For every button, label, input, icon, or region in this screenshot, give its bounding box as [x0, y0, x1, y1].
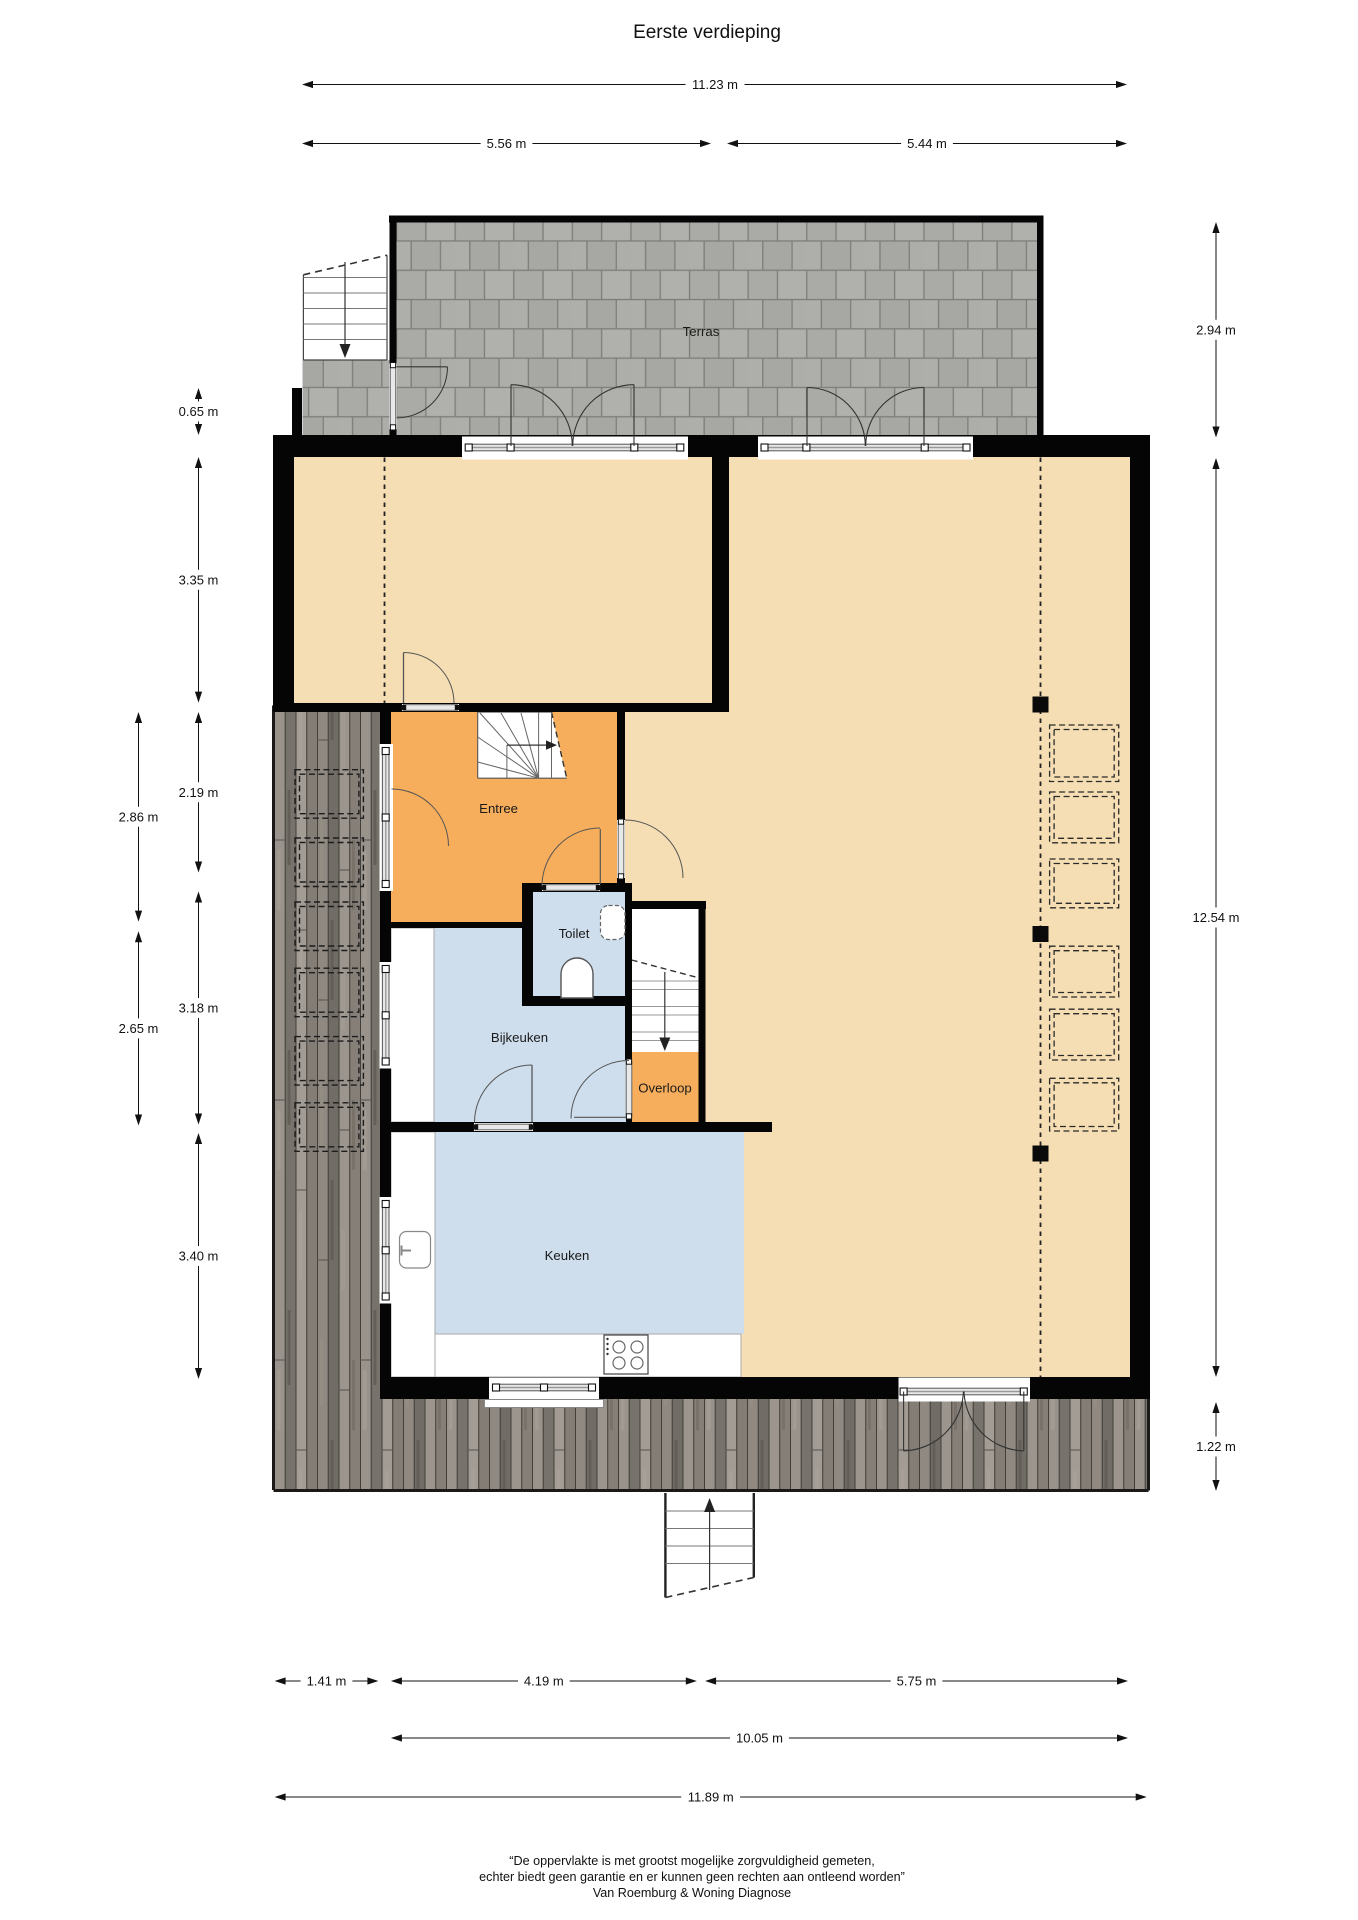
- svg-text:11.23 m: 11.23 m: [692, 77, 738, 92]
- svg-text:2.86 m: 2.86 m: [119, 809, 159, 824]
- svg-text:5.75 m: 5.75 m: [897, 1674, 937, 1689]
- svg-text:Entree: Entree: [479, 801, 518, 816]
- svg-text:1.41 m: 1.41 m: [307, 1674, 347, 1689]
- svg-text:2.65 m: 2.65 m: [119, 1021, 159, 1036]
- svg-text:echter biedt geen garantie en: echter biedt geen garantie en er kunnen …: [479, 1870, 905, 1884]
- svg-text:3.18 m: 3.18 m: [179, 1001, 219, 1016]
- svg-text:2.94 m: 2.94 m: [1196, 322, 1236, 337]
- svg-text:12.54 m: 12.54 m: [1193, 910, 1240, 925]
- svg-text:0.65 m: 0.65 m: [179, 404, 219, 419]
- svg-text:Van Roemburg & Woning Diagnose: Van Roemburg & Woning Diagnose: [593, 1886, 791, 1900]
- svg-text:2.19 m: 2.19 m: [179, 785, 219, 800]
- svg-text:5.44 m: 5.44 m: [907, 136, 947, 151]
- svg-text:1.22 m: 1.22 m: [1196, 1439, 1236, 1454]
- svg-text:“De oppervlakte is met grootst: “De oppervlakte is met grootst mogelijke…: [509, 1854, 874, 1868]
- svg-text:11.89 m: 11.89 m: [688, 1790, 734, 1805]
- svg-text:Terras: Terras: [683, 324, 720, 339]
- svg-text:5.56 m: 5.56 m: [487, 136, 527, 151]
- svg-text:10.05 m: 10.05 m: [736, 1731, 783, 1746]
- svg-text:Eerste verdieping: Eerste verdieping: [633, 22, 781, 43]
- svg-text:3.35 m: 3.35 m: [179, 572, 219, 587]
- svg-text:Keuken: Keuken: [545, 1248, 590, 1263]
- svg-text:Toilet: Toilet: [559, 926, 590, 941]
- svg-text:Overloop: Overloop: [638, 1081, 692, 1096]
- svg-text:3.40 m: 3.40 m: [179, 1249, 219, 1264]
- svg-text:4.19 m: 4.19 m: [524, 1674, 564, 1689]
- svg-text:Bijkeuken: Bijkeuken: [491, 1030, 548, 1045]
